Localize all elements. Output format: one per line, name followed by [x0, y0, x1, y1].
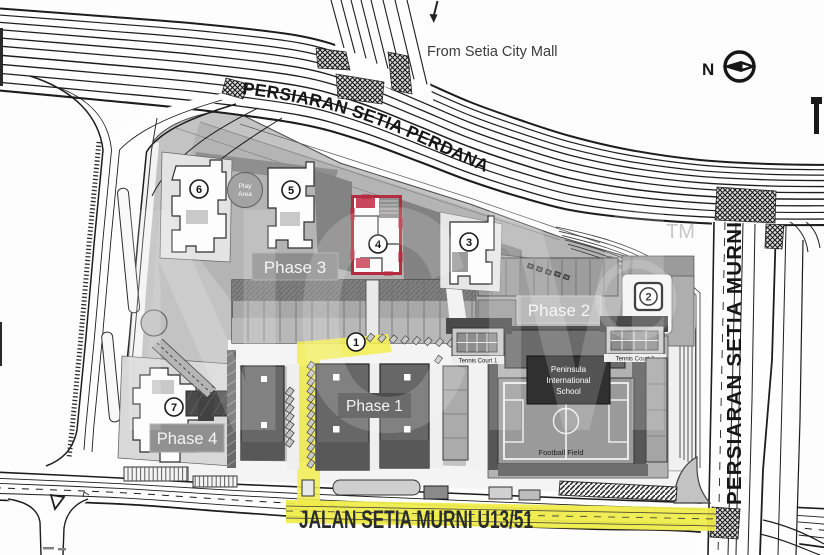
- svg-text:N: N: [702, 60, 714, 79]
- svg-text:PERSIARAN SETIA MURNI: PERSIARAN SETIA MURNI: [723, 221, 746, 505]
- svg-text:JALAN SETIA MURNI U13/51: JALAN SETIA MURNI U13/51: [299, 506, 533, 534]
- svg-text:NCM: NCM: [112, 140, 680, 498]
- svg-text:TM: TM: [666, 221, 695, 243]
- svg-text:From Setia City Mall: From Setia City Mall: [427, 44, 558, 60]
